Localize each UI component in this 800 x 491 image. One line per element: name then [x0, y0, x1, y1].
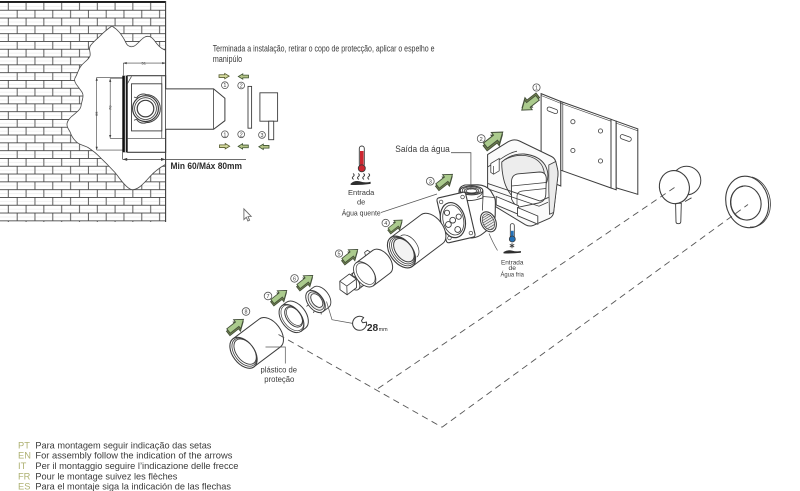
- svg-text:Pour le montage suivez les flè: Pour le montage suivez les flèches: [35, 471, 177, 481]
- svg-text:6: 6: [293, 277, 296, 283]
- svg-text:Entrada: Entrada: [348, 188, 375, 197]
- svg-text:de: de: [357, 197, 365, 206]
- svg-text:Para montagem seguir indicação: Para montagem seguir indicação das setas: [35, 440, 211, 450]
- svg-text:2: 2: [240, 84, 243, 90]
- svg-text:Saída da água: Saída da água: [395, 144, 450, 154]
- svg-text:3: 3: [429, 179, 432, 185]
- svg-text:Água fria: Água fria: [500, 269, 524, 278]
- svg-text:proteção: proteção: [264, 375, 295, 384]
- svg-text:Terminada a instalação, retira: Terminada a instalação, retirar o copo d…: [213, 44, 435, 54]
- svg-text:For assembly follow the indica: For assembly follow the indication of th…: [35, 451, 232, 461]
- svg-text:EN: EN: [18, 451, 31, 461]
- svg-text:2: 2: [240, 132, 243, 138]
- svg-text:8: 8: [245, 310, 248, 316]
- svg-text:3: 3: [261, 133, 264, 139]
- svg-text:5: 5: [338, 252, 341, 258]
- svg-text:PT: PT: [18, 440, 30, 450]
- svg-text:51: 51: [142, 61, 147, 66]
- svg-text:plástico de: plástico de: [261, 365, 298, 374]
- svg-text:65: 65: [94, 111, 99, 116]
- svg-text:Para el montaje siga la indica: Para el montaje siga la indicación de la…: [35, 482, 231, 491]
- svg-text:7: 7: [267, 294, 270, 300]
- svg-text:FR: FR: [18, 471, 31, 481]
- svg-text:2: 2: [480, 137, 483, 143]
- svg-text:28: 28: [367, 323, 379, 334]
- svg-text:ES: ES: [18, 482, 30, 491]
- svg-text:1: 1: [223, 83, 226, 89]
- svg-text:Per il montaggio seguire l’ind: Per il montaggio seguire l’indicazione d…: [35, 461, 238, 471]
- svg-text:1: 1: [223, 132, 226, 138]
- svg-text:Min 60/Máx 80mm: Min 60/Máx 80mm: [171, 161, 243, 171]
- svg-text:1: 1: [535, 86, 538, 92]
- svg-text:Água quente: Água quente: [342, 209, 381, 218]
- svg-text:manipúlo: manipúlo: [213, 54, 243, 64]
- svg-text:70: 70: [108, 105, 113, 110]
- svg-text:4: 4: [384, 221, 387, 227]
- svg-text:IT: IT: [18, 461, 27, 471]
- svg-text:mm: mm: [379, 327, 388, 333]
